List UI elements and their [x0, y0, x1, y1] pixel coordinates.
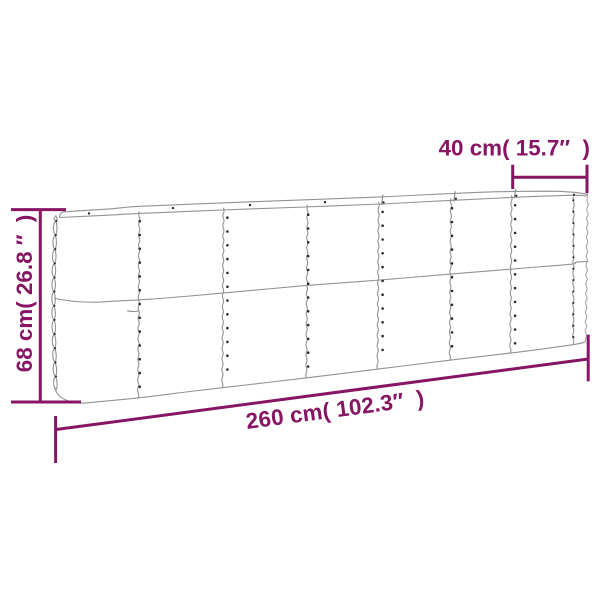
svg-text:68 cm( 26.8 ″ ): 68 cm( 26.8 ″ ): [12, 215, 37, 373]
svg-text:40 cm( 15.7″ ): 40 cm( 15.7″ ): [439, 136, 590, 161]
